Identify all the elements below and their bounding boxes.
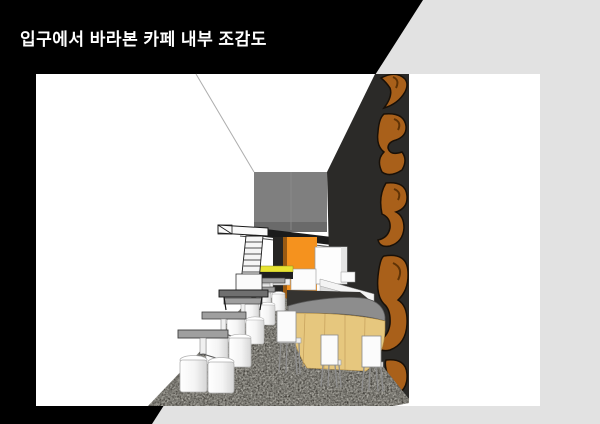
presentation-slide: 입구에서 바라본 카페 내부 조감도 [0,0,600,424]
counter-machine [291,269,316,290]
cafe-back-wall [254,172,327,232]
slide-title: 입구에서 바라본 카페 내부 조감도 [20,25,267,50]
white-chair [236,274,262,290]
cafe-interior-rendering [0,0,600,424]
dark-table [219,290,268,297]
